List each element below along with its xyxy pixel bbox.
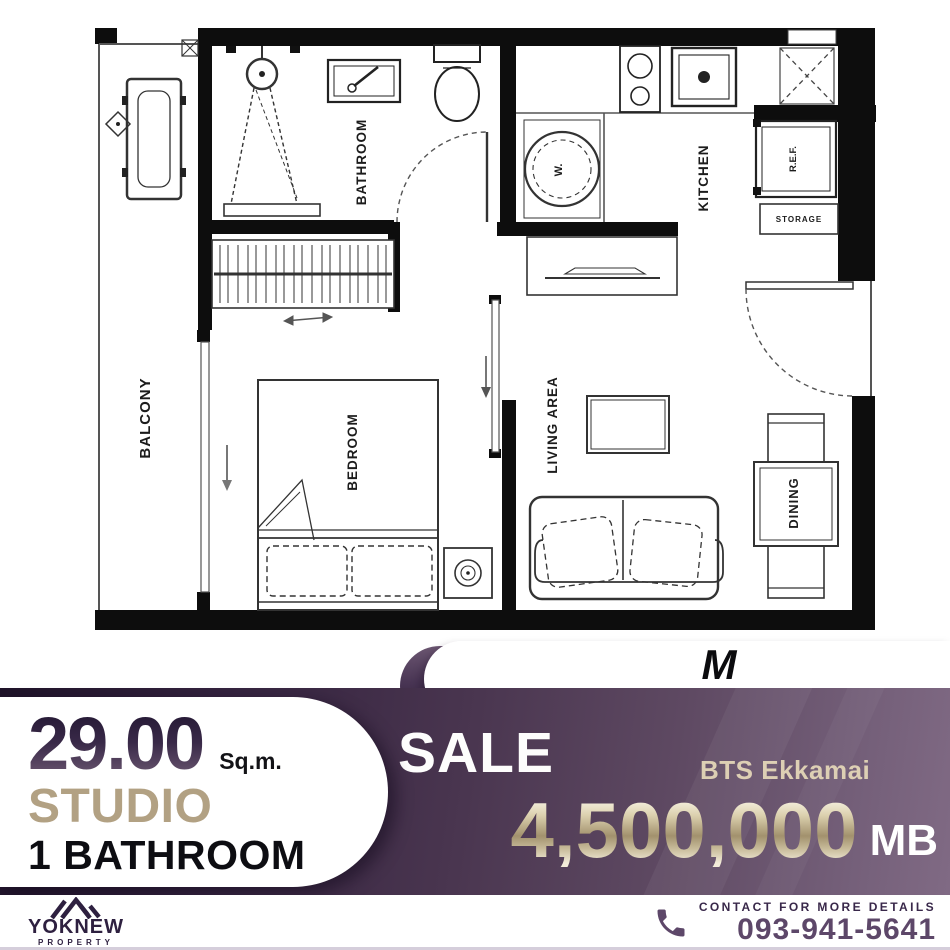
area-row: 29.00 Sq.m. bbox=[28, 707, 388, 781]
toilet bbox=[434, 45, 480, 121]
living-area-label: LIVING AREA bbox=[545, 376, 560, 474]
balcony-rails bbox=[99, 44, 198, 610]
sliding-partition bbox=[481, 300, 499, 452]
coffee-table bbox=[587, 396, 669, 453]
stove bbox=[620, 46, 660, 112]
tv-console bbox=[527, 237, 677, 295]
bathroom-door bbox=[397, 132, 487, 222]
bathroom-count: 1 BATHROOM bbox=[28, 835, 388, 876]
contact-block: CONTACT FOR MORE DETAILS 093-941-5641 bbox=[653, 900, 936, 946]
fridge-label: R.E.F. bbox=[788, 146, 799, 172]
bedroom-label: BEDROOM bbox=[345, 413, 360, 491]
unit-model: M bbox=[702, 644, 737, 686]
entrance-door bbox=[746, 281, 871, 396]
bathroom-sink bbox=[328, 60, 400, 102]
service-shaft bbox=[780, 30, 836, 104]
floor-plan: BALCONY BATHROOM KITCHEN BEDROOM LIVING … bbox=[0, 0, 950, 660]
balcony-label: BALCONY bbox=[137, 377, 154, 458]
area-unit: Sq.m. bbox=[219, 750, 282, 773]
washer-label: W. bbox=[553, 164, 565, 177]
unit-type: STUDIO bbox=[28, 783, 388, 831]
balcony-sliding-door bbox=[201, 342, 232, 592]
phone-number: 093-941-5641 bbox=[737, 914, 936, 946]
dining-label: DINING bbox=[786, 477, 801, 529]
area-value: 29.00 bbox=[28, 707, 203, 781]
price-row: 4,500,000 MB bbox=[511, 793, 938, 867]
slide-arrow bbox=[284, 313, 332, 325]
sale-tag: SALE bbox=[398, 720, 554, 786]
bedside-table bbox=[444, 548, 492, 598]
sofa bbox=[530, 497, 723, 599]
spec-card: 29.00 Sq.m. STUDIO 1 BATHROOM bbox=[0, 697, 388, 887]
kitchen-label: KITCHEN bbox=[696, 145, 711, 212]
price-value: 4,500,000 bbox=[511, 793, 858, 867]
wardrobe bbox=[212, 240, 394, 308]
price-currency: MB bbox=[870, 819, 938, 863]
property-flyer: BALCONY BATHROOM KITCHEN BEDROOM LIVING … bbox=[0, 0, 950, 950]
bathroom-label: BATHROOM bbox=[354, 119, 369, 206]
ac-condenser-unit bbox=[106, 40, 198, 199]
bts-station: BTS Ekkamai bbox=[700, 755, 870, 786]
footer: YOKNEW PROPERTY CONTACT FOR MORE DETAILS… bbox=[0, 895, 950, 950]
phone-icon bbox=[653, 905, 689, 941]
storage-label: STORAGE bbox=[776, 215, 822, 224]
brand-subtitle: PROPERTY bbox=[38, 937, 114, 948]
kitchen-sink bbox=[672, 48, 736, 106]
shower bbox=[224, 46, 320, 216]
brand-logo: YOKNEW PROPERTY bbox=[28, 897, 124, 948]
brand-name: YOKNEW bbox=[28, 917, 124, 937]
contact-texts: CONTACT FOR MORE DETAILS 093-941-5641 bbox=[699, 900, 936, 946]
contact-label: CONTACT FOR MORE DETAILS bbox=[699, 900, 936, 914]
room-labels: BALCONY BATHROOM KITCHEN BEDROOM LIVING … bbox=[137, 119, 822, 529]
